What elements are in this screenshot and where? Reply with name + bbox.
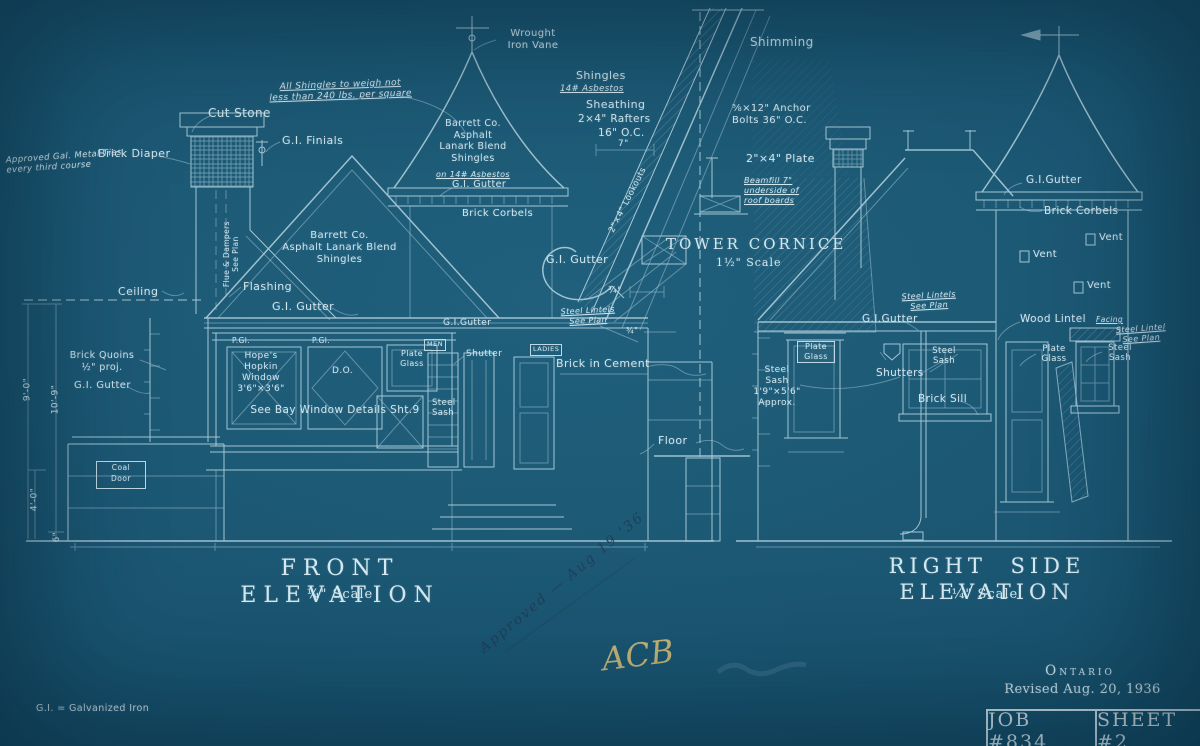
right-elevation-scale: ¼" Scale (930, 587, 1040, 603)
label-steel-sash-note: Steel Sash 1'9"×5'6" Approx. (746, 365, 808, 409)
label-vent-1: Vent (1099, 232, 1123, 244)
label-seven-in: 7" (618, 139, 629, 150)
label-right-plate-glass-2: Plate Glass (1036, 344, 1072, 365)
label-vent-3: Vent (1087, 280, 1111, 292)
dim-6in: 6" (52, 524, 62, 550)
label-beamfill: Beamfill 7" underside of roof boards (744, 176, 834, 205)
label-right-tower-corbels: Brick Corbels (1044, 205, 1118, 218)
sheet-number: SHEET #2 (1095, 711, 1200, 746)
dim-10-9: 10'-9" (51, 359, 62, 439)
label-shingles-asbestos: 14# Asbestos (560, 84, 624, 94)
label-brick-in-cement: Brick in Cement (556, 357, 650, 370)
label-hopkin-window: Hope's Hopkin Window 3'6"×3'6" (226, 351, 296, 395)
label-right-steel-sash-1: Steel Sash (928, 346, 960, 367)
label-brick-diaper: Brick Diaper (98, 147, 170, 160)
region-label: Ontario (1020, 663, 1140, 679)
label-pgl-2: P.Gl. (312, 336, 330, 345)
tower-cornice-title: TOWER CORNICE (666, 235, 846, 253)
label-main-gutter: G.I. Gutter (272, 300, 334, 313)
ladies-sign: LADIES (530, 344, 562, 356)
label-right-steel-lintels: Steel Lintels See Plan (890, 289, 969, 313)
blueprint-drawing (0, 0, 1200, 746)
label-right-plate-glass-1: Plate Glass (797, 341, 835, 363)
front-elevation-scale: ¼" Scale (285, 587, 395, 603)
label-ditto: D.O. (332, 366, 353, 377)
label-shimming: Shimming (750, 35, 814, 50)
tower-cornice-scale: 1½" Scale (716, 256, 782, 269)
label-quoin-gutter: G.I. Gutter (74, 380, 131, 392)
label-brick-sill: Brick Sill (918, 393, 967, 406)
label-shutters: Shutters (876, 367, 924, 380)
dim-three-quarter-a: ¾" (608, 286, 622, 297)
label-tower-gutter: G.I. Gutter (452, 179, 506, 191)
dim-9-0: 9'-0" (23, 354, 34, 424)
label-pgl-1: P.Gl. (232, 336, 250, 345)
coal-door-sign: Coal Door (96, 461, 146, 489)
job-number: JOB #834 (988, 711, 1095, 746)
label-wrought-iron-vane: Wrought Iron Vane (498, 28, 568, 52)
blueprint-sheet: All Shingles to weigh not less than 240 … (0, 0, 1200, 746)
label-shingles: Shingles (576, 69, 626, 82)
label-brick-quoins: Brick Quoins ½" proj. (64, 350, 140, 373)
label-anchor-bolts: ⅝×12" Anchor Bolts 36" O.C. (732, 103, 832, 127)
label-flue-note: Flue & Dampers See Plan (222, 199, 240, 309)
label-vent-2: Vent (1033, 249, 1057, 261)
label-bay-note: See Bay Window Details Sht.9 (226, 404, 444, 417)
men-sign: MEN (424, 339, 446, 351)
dim-4-0: 4'-0" (30, 469, 41, 529)
label-facing: Facing (1096, 315, 1123, 324)
label-shutter: Shutter (466, 349, 502, 360)
label-cornice-gutter: G.I. Gutter (546, 253, 608, 266)
label-right-tower-gutter: G.I.Gutter (1026, 174, 1082, 187)
label-tower-corbels: Brick Corbels (462, 208, 533, 220)
label-cut-stone: Cut Stone (208, 106, 271, 121)
label-gutter-right: G.I.Gutter (443, 318, 491, 329)
label-main-shingles: Barrett Co. Asphalt Lanark Blend Shingle… (272, 230, 407, 267)
legend-gi: G.I. = Galvanized Iron (36, 703, 149, 715)
faint-scribble (718, 664, 806, 674)
label-ceiling: Ceiling (118, 285, 158, 298)
label-rafters: 2×4" Rafters (578, 113, 651, 126)
label-wood-lintel: Wood Lintel (1020, 313, 1086, 326)
revised-date: Revised Aug. 20, 1936 (995, 682, 1170, 698)
label-gi-finials: G.I. Finials (282, 134, 343, 147)
label-plate: 2"×4" Plate (746, 152, 815, 165)
label-right-steel-sash-2: Steel Sash (1102, 343, 1138, 364)
label-front-steel-sash: Steel Sash (432, 398, 456, 419)
label-flashing: Flashing (243, 280, 292, 293)
dim-three-quarter-b: ¾" (626, 326, 638, 336)
label-right-gutter: G.I.Gutter (862, 313, 918, 326)
label-plate-glass: Plate Glass (390, 349, 434, 369)
label-tower-shingles: Barrett Co. Asphalt Lanark Blend Shingle… (428, 118, 518, 164)
label-floor: Floor (658, 434, 687, 447)
label-sheathing: Sheathing (586, 98, 645, 111)
label-front-steel-lintels: Steel Lintels See Plan (552, 304, 625, 327)
label-rafter-spacing: 16" O.C. (598, 127, 645, 140)
title-block: JOB #834 SHEET #2 (986, 709, 1200, 746)
